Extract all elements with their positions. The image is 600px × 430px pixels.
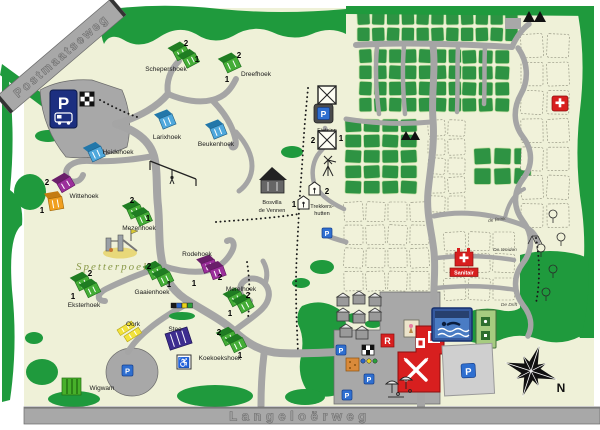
forest-left-strip [2,68,22,402]
camping-pitch [431,27,445,42]
road-lane [457,46,458,112]
camping-pitch [344,202,364,222]
koekoekshoek-2: 2 [217,328,222,337]
campground-map: Postmaatseweg Langeloërweg P 2 1 [0,0,600,430]
mezenhoek-label: Mezenhoek [122,225,156,232]
stee-label: Stee [168,326,182,333]
hedge [169,312,195,320]
sanitair-east-sign [552,96,568,111]
camping-pitch [389,81,402,95]
p-sign: P [336,345,346,355]
camping-pitch [382,150,399,163]
dreefhoek-2: 2 [237,51,242,60]
schepershoek-label: Schepershoek [145,66,187,73]
camping-pitch [344,271,363,291]
main-parking-sign: P [50,90,77,128]
camping-pitch [494,168,512,185]
playbarn-box [346,358,359,371]
gaaienhoek-label: Gaaienhoek [134,289,170,296]
eksterhoek-label: Eksterhoek [68,302,101,309]
trekkershutten-1: 1 [292,200,297,209]
camping-pitch [546,118,569,143]
camping-pitch [344,248,364,268]
road-lane [403,46,405,114]
sanitair-label: Sanitair [454,271,475,277]
wittehoek-label: Wittehoek [70,193,100,200]
camping-pitch [382,134,399,148]
crossed-box-north [318,86,336,104]
road-south-connector [261,354,264,406]
rodehoek-2: 2 [218,273,223,282]
checker-cell [80,92,85,97]
bosvilla-label2: de Vennen [259,208,286,214]
camping-pitch [410,225,429,245]
camping-pitch [495,66,510,81]
forest-blob [281,146,303,158]
camping-pitch [448,177,466,194]
camping-pitch [444,231,466,251]
parking-building: P [442,343,495,396]
schepershoek-1: 1 [195,55,200,64]
road-top-cross [356,44,512,47]
crossed-box-south [318,131,336,149]
camping-pitch [382,165,399,179]
checker-cell [85,97,90,102]
camping-pitch [388,202,407,222]
swimmer-icon [442,322,446,326]
camping-pitch [363,134,380,148]
forest-blob [285,389,325,405]
camping-pitch [448,120,466,137]
camping-pitch [382,180,399,194]
camping-pitch [462,98,477,112]
pool-sign [432,308,472,341]
checker-cell [89,92,94,97]
camping-pitch [366,271,386,291]
camping-pitch [416,27,429,41]
camping-pitch [494,148,512,165]
koekoekshoek-label: Koekoekshoek [199,355,242,362]
merelhoek-1: 1 [228,309,233,318]
camping-pitch [359,65,372,79]
map-canvas: Postmaatseweg Langeloërweg P 2 1 [0,0,600,430]
camping-pitch [547,62,570,86]
parking-p: P [58,94,69,113]
compass-n-label: N [557,381,566,395]
camping-pitch [388,248,407,268]
langeloerweg-label: Langeloërweg [229,409,370,424]
camper-wheel [67,121,70,124]
eksterhoek-1: 1 [71,292,76,301]
camping-pitch [359,49,373,64]
camping-pitch [386,27,400,42]
camping-pitch [418,49,432,64]
mezenhoek-1: 1 [146,214,151,223]
reception-sign: R [381,334,394,347]
camping-pitch [495,98,510,112]
icecream-scoop [409,324,413,328]
camping-pitch [359,81,373,96]
camping-pitch [547,34,570,58]
camping-pitch [495,82,510,96]
p-letter: P [367,377,372,384]
crossed-box-1: 1 [339,134,344,143]
forest-blob [177,385,253,407]
wigwam-label: Wigwam [90,385,115,392]
camping-pitch [345,149,362,163]
recycling-dots [361,359,377,363]
camping-pitch [372,27,385,41]
wittehoek-1: 1 [40,206,45,215]
dreefhoek-1: 1 [225,75,230,84]
camping-pitch [462,82,477,97]
p-sign: P [364,374,374,384]
camping-pitch [388,65,402,80]
reception-r: R [384,336,391,346]
camping-pitch [345,134,362,147]
camping-pitch [389,49,402,63]
p-letter: P [125,367,130,376]
checker-sign [80,92,94,106]
camping-pitch [366,225,386,245]
mezenhoek-2: 2 [130,196,135,205]
p-letter: P [339,348,344,355]
camping-pitch [388,271,408,291]
camping-pitch [345,180,362,194]
camping-pitch [418,65,431,79]
oork-label: Oork [126,321,141,328]
p-letter: P [345,393,350,400]
camping-pitch [448,158,465,174]
camping-pitch [475,27,488,41]
building-wigwam [62,378,81,395]
trekkershutten-2: 2 [325,187,330,196]
p-letter: P [325,231,330,238]
bosvilla-label1: Bosvilla [262,200,282,206]
wittehoek-2: 2 [45,178,50,187]
camping-pitch [474,168,491,185]
beukenhoek-label: Beukenhoek [198,141,235,148]
merelhoek-label: Merelhoek [226,286,257,293]
camping-pitch [490,27,504,42]
camping-pitch [401,27,414,41]
camping-pitch [547,147,569,171]
camping-pitch [366,202,386,222]
camping-pitch [363,150,380,163]
camping-pitch [359,97,372,111]
trekkershutten-label1: Trekkers- [310,204,334,210]
spetterpoel-label: Spetterpoel [76,261,148,273]
camping-pitch [474,148,492,165]
camping-pitch [345,165,362,178]
camping-pitch [546,175,569,200]
fietsinn-p: P [321,109,327,119]
forest-blob [26,359,58,385]
camping-pitch [388,225,408,245]
camping-pitch [364,181,381,194]
cup-icon [419,341,423,346]
camping-pitch [448,196,465,212]
wheelchair-icon: ♿ [178,356,190,369]
wheelchair-sign: ♿ [177,355,191,369]
camping-pitch [389,97,402,112]
gaaienhoek-1: 1 [167,280,172,289]
green-building [476,310,496,348]
camping-pitch [410,248,430,268]
camping-pitch [410,271,429,291]
camping-pitch [400,180,417,194]
camping-pitch [366,248,385,268]
camping-pitch [462,50,477,65]
checker-cell [80,101,85,106]
camping-pitch [468,278,490,301]
forest-blob [292,278,310,288]
road-lane [484,47,485,104]
de-weiden-label: De Weiden [493,247,517,253]
larixhoek-label: Larixhoek [153,134,182,141]
camping-pitch [495,50,510,64]
checker-box-small [362,345,374,355]
forest-blob [14,174,46,210]
trekkershutten-label2: hutten [314,211,330,217]
p-sign: P [322,228,332,238]
checker-cell [89,101,94,106]
camping-pitch [468,232,490,251]
camping-pitch [401,165,418,178]
dreefhoek-label: Dreefhoek [241,71,272,78]
forest-blob [25,332,43,344]
crossed-box-2: 2 [311,136,316,145]
fietsinn-sign: P [314,104,333,123]
rodehoek-1: 1 [192,279,197,288]
camping-pitch [400,149,417,163]
bosvilla-body [261,180,284,193]
camping-pitch [461,27,474,41]
camping-pitch [448,139,466,156]
sanitair-label-box: Sanitair [450,268,478,277]
camping-pitch [357,27,370,41]
forest-blob [310,260,334,274]
langeloerweg-road: Langeloërweg [24,407,600,424]
camping-pitch [363,165,380,179]
heidehoek-label: Heidehoek [102,149,134,156]
camper-window [57,115,62,119]
rodehoek-label: Rodehoek [182,251,212,258]
p-sign: P [122,365,133,376]
p-sign: P [342,390,352,400]
north-exit-stub [505,18,521,29]
camper-wheel [58,121,61,124]
camping-pitch [446,27,459,41]
camping-pitch [462,66,477,80]
schepershoek-2: 2 [184,39,189,48]
de-drift-label: De Drift [501,302,518,308]
camping-pitch [547,204,569,228]
camping-pitch [404,65,417,79]
